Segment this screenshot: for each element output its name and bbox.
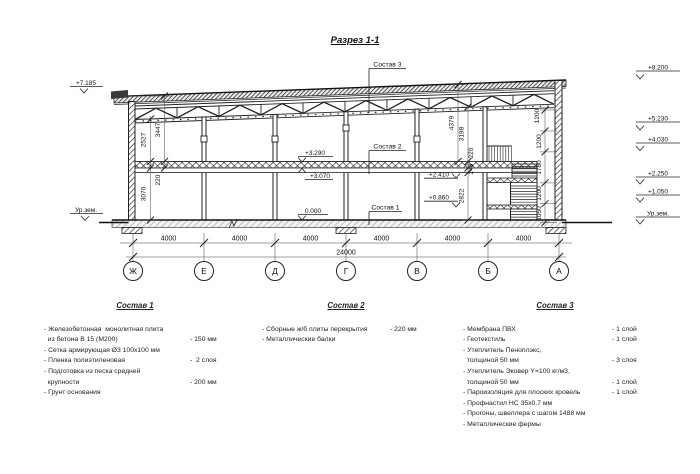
elevation-value: Ур.зем. bbox=[647, 211, 669, 218]
legend-item: - Прогоны, швеллера с шагом 1488 мм bbox=[463, 409, 647, 420]
legend-item: - Утеплитель Эковер Y=100 кг/м3, bbox=[463, 367, 647, 378]
dim-label: 1200 bbox=[534, 108, 541, 123]
legend-sostav-3: Состав 3 - Мембрана ПВХ- 1 слой - Геотек… bbox=[463, 301, 647, 431]
axis-label: Ж bbox=[129, 266, 137, 276]
legend-item: толщиной 50 мм- 1 слой bbox=[463, 378, 647, 389]
vertical-dims-right: 1200 1200 1780 1200 1050 bbox=[534, 107, 557, 227]
legend-item: - Металлические фермы bbox=[463, 420, 647, 431]
stair-flight-middle bbox=[511, 186, 537, 202]
axis-label: А bbox=[556, 266, 562, 276]
elevation-mark-right-4: +1.050 bbox=[636, 189, 680, 203]
railing bbox=[488, 146, 512, 162]
axis-label: Е bbox=[201, 266, 207, 276]
legend-item: - Металлические балки bbox=[262, 335, 430, 346]
dim-label: 220 bbox=[155, 174, 162, 185]
stair-flight-lower bbox=[511, 209, 537, 217]
dim-label: 1200 bbox=[536, 186, 543, 201]
callout-label: Состав 3 bbox=[373, 62, 401, 69]
bottom-dimensions: 4000 4000 4000 4000 4000 4000 24000 bbox=[120, 233, 572, 261]
elevation-value: Ур.зем. bbox=[75, 207, 97, 214]
stair-flight-upper bbox=[512, 164, 537, 178]
axis-label: Г bbox=[344, 266, 349, 276]
elevation-mark-right-2: +4.030 bbox=[636, 137, 680, 151]
legend-item: - Сборные ж/б плиты перекрытия- 220 мм bbox=[262, 325, 430, 336]
left-wall bbox=[129, 102, 136, 223]
legend-title: Состав 2 bbox=[262, 301, 430, 312]
span-dim: 4000 bbox=[374, 236, 390, 243]
legend-title: Состав 1 bbox=[44, 301, 226, 312]
dim-label: 220 bbox=[468, 147, 475, 158]
elevation-value: +5.230 bbox=[648, 116, 668, 123]
elevation-mark-right-5: Ур.зем. bbox=[636, 211, 680, 225]
drawing-sheet: Разрез 1-1 bbox=[0, 0, 700, 474]
dim-label: 1050 bbox=[536, 206, 543, 221]
callout-label: Состав 2 bbox=[373, 144, 401, 151]
legend-item: - Грунт основания bbox=[44, 388, 226, 399]
legend-item: - Геотекстиль- 1 слой bbox=[463, 335, 647, 346]
legend-item: - Сетка армирующая Ø3 100х100 мм bbox=[44, 346, 226, 357]
parapet-cap bbox=[111, 90, 128, 99]
legend-sostav-2: Состав 2 - Сборные ж/б плиты перекрытия-… bbox=[262, 301, 430, 346]
elevation-value: +8.200 bbox=[648, 65, 668, 72]
legend-item: - Пароизоляция для плоских кровель- 1 сл… bbox=[463, 388, 647, 399]
legend-sostav-1: Состав 1 - Железобетонная монолитная пли… bbox=[44, 301, 226, 399]
span-dim: 4000 bbox=[516, 236, 532, 243]
column-gussets bbox=[201, 125, 420, 142]
elevation-value: +3.290 bbox=[305, 150, 325, 157]
right-wall bbox=[555, 81, 562, 223]
elevation-value: +1.050 bbox=[648, 189, 668, 196]
elevation-value: +2.250 bbox=[648, 171, 668, 178]
legend-item: из бетона В 15 (М200)- 150 мм bbox=[44, 335, 226, 346]
legend-item: - Пленка полиэтиленовая- 2 слоя bbox=[44, 356, 226, 367]
stair-landing-upper bbox=[487, 178, 537, 183]
elevation-value: 0.000 bbox=[305, 208, 322, 215]
dim-label: 4379 bbox=[449, 115, 456, 130]
span-dim: 4000 bbox=[161, 236, 177, 243]
legend-item: - Железобетонная монолитная плита bbox=[44, 325, 226, 336]
elevation-mark-right-1: +5.230 bbox=[636, 116, 680, 131]
legend-item: толщиной 50 мм- 3 слоя bbox=[463, 356, 647, 367]
dim-label: 1780 bbox=[536, 160, 543, 175]
dim-label: 3447 bbox=[155, 122, 162, 137]
legend-item: - Мембрана ПВХ- 1 слой bbox=[463, 325, 647, 336]
elevation-mark-right-0: +8.200 bbox=[636, 65, 680, 80]
dim-label: 2822 bbox=[459, 188, 466, 203]
span-dim: 4000 bbox=[445, 236, 461, 243]
span-dim: 4000 bbox=[232, 236, 248, 243]
axis-label: В bbox=[414, 266, 420, 276]
total-dim: 24000 bbox=[336, 250, 356, 257]
elevation-value: +7.185 bbox=[76, 80, 96, 87]
axis-label: Б bbox=[485, 266, 491, 276]
legend-title: Состав 3 bbox=[463, 301, 647, 312]
axis-label: Д bbox=[272, 266, 278, 276]
elevation-value: +4.030 bbox=[648, 137, 668, 144]
elevation-mark-left-ground: Ур.зем. bbox=[70, 207, 103, 221]
roof bbox=[111, 80, 566, 105]
elevation-value: +2.410 bbox=[429, 172, 449, 179]
legend-item: - Утеплитель Пеноплэкс, bbox=[463, 346, 647, 357]
section-drawing: Состав 3 Состав 2 Состав 1 +7.185 Ур.зем… bbox=[0, 0, 700, 300]
elevation-mark-left-top: +7.185 bbox=[70, 80, 103, 93]
axis-bubbles: Ж Е Д Г В Б А bbox=[124, 262, 569, 281]
elevation-mark-slab-top: +3.290 bbox=[298, 150, 333, 162]
legend-item: - Профнастил НС 35х0.7 мм bbox=[463, 399, 647, 410]
callout-label: Состав 1 bbox=[371, 205, 399, 212]
elevation-value: +3.070 bbox=[310, 173, 330, 180]
elevation-mark-right-3: +2.250 bbox=[636, 171, 680, 185]
dim-label: 1200 bbox=[536, 134, 543, 149]
dim-label: 248 bbox=[468, 163, 475, 174]
floor-slab bbox=[135, 162, 537, 173]
legend-item: крупности- 200 мм bbox=[44, 378, 226, 389]
dim-label: 2527 bbox=[141, 132, 148, 147]
elevation-mark-floor: 0.000 bbox=[298, 208, 328, 220]
stair-landing-lower bbox=[487, 205, 537, 209]
legend-item: - Подготовка из песка средней bbox=[44, 367, 226, 378]
span-dim: 4000 bbox=[303, 236, 319, 243]
elevation-mark-landing-lower: +0.860 bbox=[424, 195, 460, 208]
dim-label: 3198 bbox=[459, 126, 466, 141]
footings bbox=[122, 228, 566, 234]
elevation-value: +0.860 bbox=[429, 195, 449, 202]
dim-label: 3070 bbox=[141, 186, 148, 201]
staircase bbox=[487, 146, 537, 220]
floor-beam bbox=[135, 168, 537, 173]
